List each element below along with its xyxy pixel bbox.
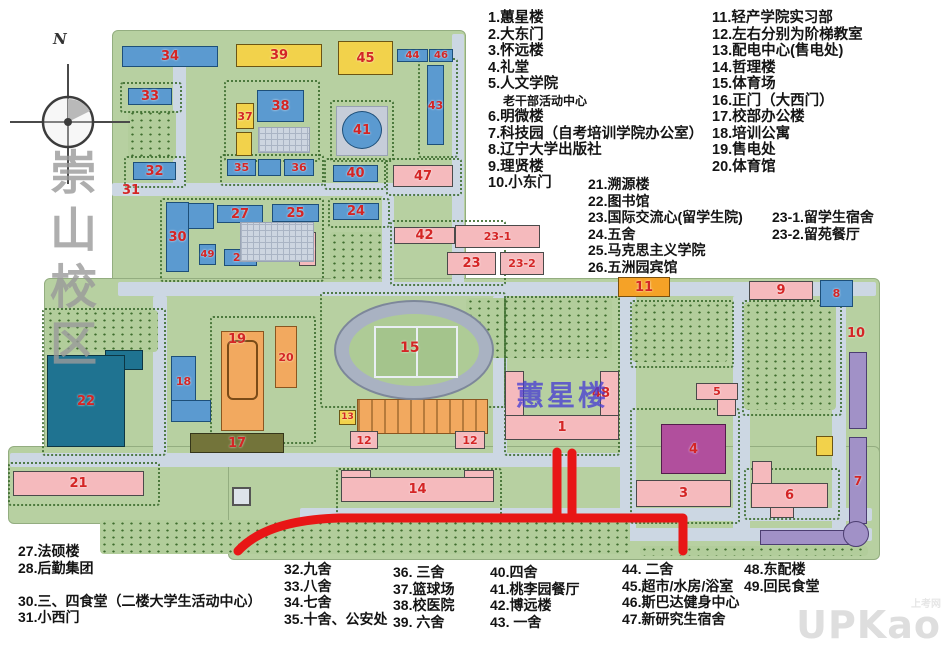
- legend-col-40-43: 40.四舍41.桃李园餐厅42.博远楼43. 一舍: [490, 564, 579, 630]
- legend-item: 18.培训公寓: [712, 126, 863, 143]
- building: [171, 400, 211, 422]
- tree-lined-block: [630, 300, 734, 368]
- building-number: 39: [270, 49, 288, 62]
- building: [717, 399, 736, 416]
- building-number: 30: [168, 231, 186, 244]
- building-number: 21: [69, 477, 87, 490]
- building-3: 3: [636, 480, 731, 507]
- building-6: 6: [751, 483, 828, 508]
- legend-item: 45.超市/水房/浴室: [622, 578, 739, 595]
- building-number: 27: [231, 208, 249, 221]
- building-number: 22: [77, 395, 95, 408]
- building: [258, 127, 310, 153]
- legend-item: 19.售电处: [712, 142, 863, 159]
- legend-item: 7.科技园（自考培训学院办公室）: [488, 126, 703, 143]
- building-43: 43: [427, 65, 444, 145]
- building-38: 38: [257, 90, 304, 122]
- building-13: 13: [339, 410, 356, 425]
- building-11: 11: [618, 277, 670, 297]
- building: [752, 461, 772, 484]
- legend-item: 37.篮球场: [393, 581, 454, 598]
- legend-item: 40.四舍: [490, 564, 579, 581]
- building-46: 46: [429, 49, 453, 62]
- building-number: 6: [785, 489, 794, 502]
- building: [816, 436, 833, 456]
- building-20: 20: [275, 326, 297, 388]
- building: [258, 159, 281, 176]
- building-number: 24: [347, 205, 365, 218]
- building-9: 9: [749, 281, 813, 300]
- watermark: 上考网 UPKao: [796, 600, 941, 644]
- legend-item: 23.国际交流心(留学生院): [588, 209, 743, 226]
- building-14: 14: [341, 477, 494, 502]
- building: [760, 530, 852, 545]
- building-number: 12: [462, 435, 477, 446]
- building-23-1: 23-1: [455, 225, 540, 248]
- legend-item: 9.理贤楼: [488, 159, 703, 176]
- building-number: 47: [414, 170, 432, 183]
- map-number-15: 15: [400, 340, 419, 356]
- building-number: 38: [271, 100, 289, 113]
- legend-item: 17.校部办公楼: [712, 109, 863, 126]
- legend-item: 34.七舍: [284, 594, 387, 611]
- tree-lined-block: [742, 300, 842, 416]
- legend-item: 25.马克思主义学院: [588, 242, 743, 259]
- building-number: 42: [415, 229, 433, 242]
- legend-item: 22.图书馆: [588, 193, 743, 210]
- legend-item: 35.十舍、公安处: [284, 611, 387, 628]
- building: [849, 352, 867, 429]
- building: [357, 399, 488, 434]
- legend-item: 41.桃李园餐厅: [490, 581, 579, 598]
- building-25: 25: [272, 204, 319, 222]
- legend-item: 33.八舍: [284, 578, 387, 595]
- building-number: 4: [689, 443, 698, 456]
- building: [240, 222, 314, 262]
- legend-col-11-20: 11.轻产学院实习部12.左右分别为阶梯教室13.配电中心(售电处)14.哲理楼…: [712, 10, 863, 175]
- building-36: 36: [284, 159, 314, 176]
- legend-item: 15.体育场: [712, 76, 863, 93]
- building-number: 12: [356, 435, 371, 446]
- legend-item: 6.明微楼: [488, 109, 703, 126]
- campus-map-page: 3439454446333738353632414340473027252449…: [0, 0, 947, 646]
- building-40: 40: [333, 165, 378, 182]
- building-number: 32: [145, 165, 163, 178]
- building-number: 23-1: [484, 231, 512, 242]
- legend-item: 31.小西门: [18, 609, 261, 626]
- building-23: 23: [447, 252, 496, 275]
- building-number: 25: [286, 207, 304, 220]
- legend-item: 5.人文学院: [488, 76, 703, 93]
- highlighted-building-label: 蕙星楼: [516, 374, 609, 414]
- legend-item: 49.回民食堂: [744, 578, 819, 595]
- legend-col-1-10: 1.蕙星楼2.大东门3.怀远楼4.礼堂5.人文学院老干部活动中心6.明微楼7.科…: [488, 10, 703, 192]
- building-number: 49: [201, 250, 215, 260]
- legend-col-44-47: 44. 二舍45.超市/水房/浴室46.斯巴达健身中心47.新研究生宿舍: [622, 561, 739, 627]
- legend-item: 2.大东门: [488, 27, 703, 44]
- legend-item: [18, 576, 261, 593]
- building-45: 45: [338, 41, 393, 75]
- legend-item: 32.九舍: [284, 561, 387, 578]
- legend-item: 47.新研究生宿舍: [622, 611, 739, 628]
- legend-item: 48.东配楼: [744, 561, 819, 578]
- building-number: 44: [406, 51, 420, 61]
- building-number: 23: [462, 257, 480, 270]
- map-number-31: 31: [122, 183, 140, 198]
- building: [232, 487, 251, 506]
- building-5: 5: [696, 383, 738, 400]
- legend-item: 13.配电中心(售电处): [712, 43, 863, 60]
- building-number: 36: [291, 162, 306, 173]
- building-number: 17: [228, 437, 246, 450]
- legend-item: 老干部活动中心: [488, 93, 703, 110]
- building-42: 42: [394, 227, 455, 244]
- building-number: 37: [237, 111, 252, 122]
- building: [236, 132, 252, 156]
- building-number: 1: [557, 421, 566, 434]
- building-32: 32: [133, 162, 176, 180]
- building-12: 12: [350, 431, 378, 449]
- legend-item: 44. 二舍: [622, 561, 739, 578]
- legend-item: 27.法硕楼: [18, 543, 261, 560]
- map-number-19: 19: [228, 332, 246, 347]
- building-number: 46: [434, 51, 448, 61]
- building-7: 7: [849, 437, 867, 524]
- building-8: 8: [820, 280, 853, 307]
- building-17: 17: [190, 433, 284, 453]
- building-23-2: 23-2: [500, 252, 544, 275]
- building-30: 30: [166, 202, 189, 272]
- building-27: 27: [217, 205, 263, 223]
- legend-item: 12.左右分别为阶梯教室: [712, 27, 863, 44]
- legend-item: 46.斯巴达健身中心: [622, 594, 739, 611]
- legend-item: 26.五洲园宾馆: [588, 259, 743, 276]
- building-number: 45: [356, 52, 374, 65]
- building-44: 44: [397, 49, 428, 62]
- legend-item: 1.蕙星楼: [488, 10, 703, 27]
- building-number: 23-2: [508, 258, 536, 269]
- building-number: 43: [428, 100, 443, 111]
- building-41: 41: [342, 111, 382, 149]
- legend-col-48-49: 48.东配楼49.回民食堂: [744, 561, 819, 594]
- legend-item: 4.礼堂: [488, 60, 703, 77]
- building-number: 40: [346, 167, 364, 180]
- building-number: 33: [141, 90, 159, 103]
- legend-item: 30.三、四食堂（二楼大学生活动中心）: [18, 593, 261, 610]
- building-12: 12: [455, 431, 485, 449]
- building-24: 24: [333, 203, 379, 220]
- legend-col-23-1-2: 23-1.留学生宿舍23-2.留苑餐厅: [772, 209, 874, 242]
- building: [843, 521, 869, 547]
- legend-item: 39. 六舍: [393, 614, 454, 631]
- building-number: 7: [854, 475, 862, 487]
- legend-item: 23-2.留苑餐厅: [772, 226, 874, 243]
- building-number: 20: [278, 352, 293, 363]
- map-number-10: 10: [847, 326, 865, 341]
- legend-item: 43. 一舍: [490, 614, 579, 631]
- building-49: 49: [199, 244, 216, 265]
- building-35: 35: [227, 159, 256, 176]
- legend-item: 38.校医院: [393, 597, 454, 614]
- legend-item: 14.哲理楼: [712, 60, 863, 77]
- legend-item: 8.辽宁大学出版社: [488, 142, 703, 159]
- legend-item: 36. 三舍: [393, 564, 454, 581]
- building-4: 4: [661, 424, 726, 474]
- building-39: 39: [236, 44, 322, 67]
- watermark-main: UPKao: [796, 603, 941, 646]
- building-37: 37: [236, 103, 254, 129]
- building-47: 47: [393, 165, 453, 187]
- legend-item: 23-1.留学生宿舍: [772, 209, 874, 226]
- building-number: 34: [161, 50, 179, 63]
- building-18: 18: [171, 356, 196, 406]
- building-21: 21: [13, 471, 144, 496]
- compass-north-label: N: [53, 30, 67, 48]
- legend-item: 20.体育馆: [712, 159, 863, 176]
- building-number: 5: [713, 386, 721, 397]
- building-34: 34: [122, 46, 218, 67]
- park: [640, 546, 868, 556]
- building: [770, 507, 794, 518]
- building-number: 13: [341, 413, 354, 422]
- legend-item: 21.溯源楼: [588, 176, 743, 193]
- campus-name-label: 崇山校区: [34, 148, 103, 376]
- park: [330, 232, 382, 280]
- legend-item: 11.轻产学院实习部: [712, 10, 863, 27]
- legend-item: 28.后勤集团: [18, 560, 261, 577]
- building-number: 35: [234, 162, 249, 173]
- building-number: 11: [635, 281, 653, 294]
- legend-col-21-26: 21.溯源楼22.图书馆23.国际交流心(留学生院)24.五舍25.马克思主义学…: [588, 176, 743, 275]
- building-number: 3: [679, 487, 688, 500]
- building-number: 41: [353, 124, 371, 137]
- building-number: 14: [408, 483, 426, 496]
- legend-item: 42.博远楼: [490, 597, 579, 614]
- legend-item: 16.正门（大西门）: [712, 93, 863, 110]
- building-number: 8: [833, 288, 841, 299]
- legend-item: 3.怀远楼: [488, 43, 703, 60]
- legend-col-36-39: 36. 三舍37.篮球场38.校医院39. 六舍: [393, 564, 454, 630]
- building-number: 9: [776, 284, 785, 297]
- legend-col-32-35: 32.九舍33.八舍34.七舍35.十舍、公安处: [284, 561, 387, 627]
- legend-item: 24.五舍: [588, 226, 743, 243]
- building-number: 18: [176, 376, 191, 387]
- legend-col-27-31: 27.法硕楼28.后勤集团30.三、四食堂（二楼大学生活动中心）31.小西门: [18, 543, 261, 626]
- building: [188, 203, 214, 229]
- building-1: 1: [505, 415, 619, 440]
